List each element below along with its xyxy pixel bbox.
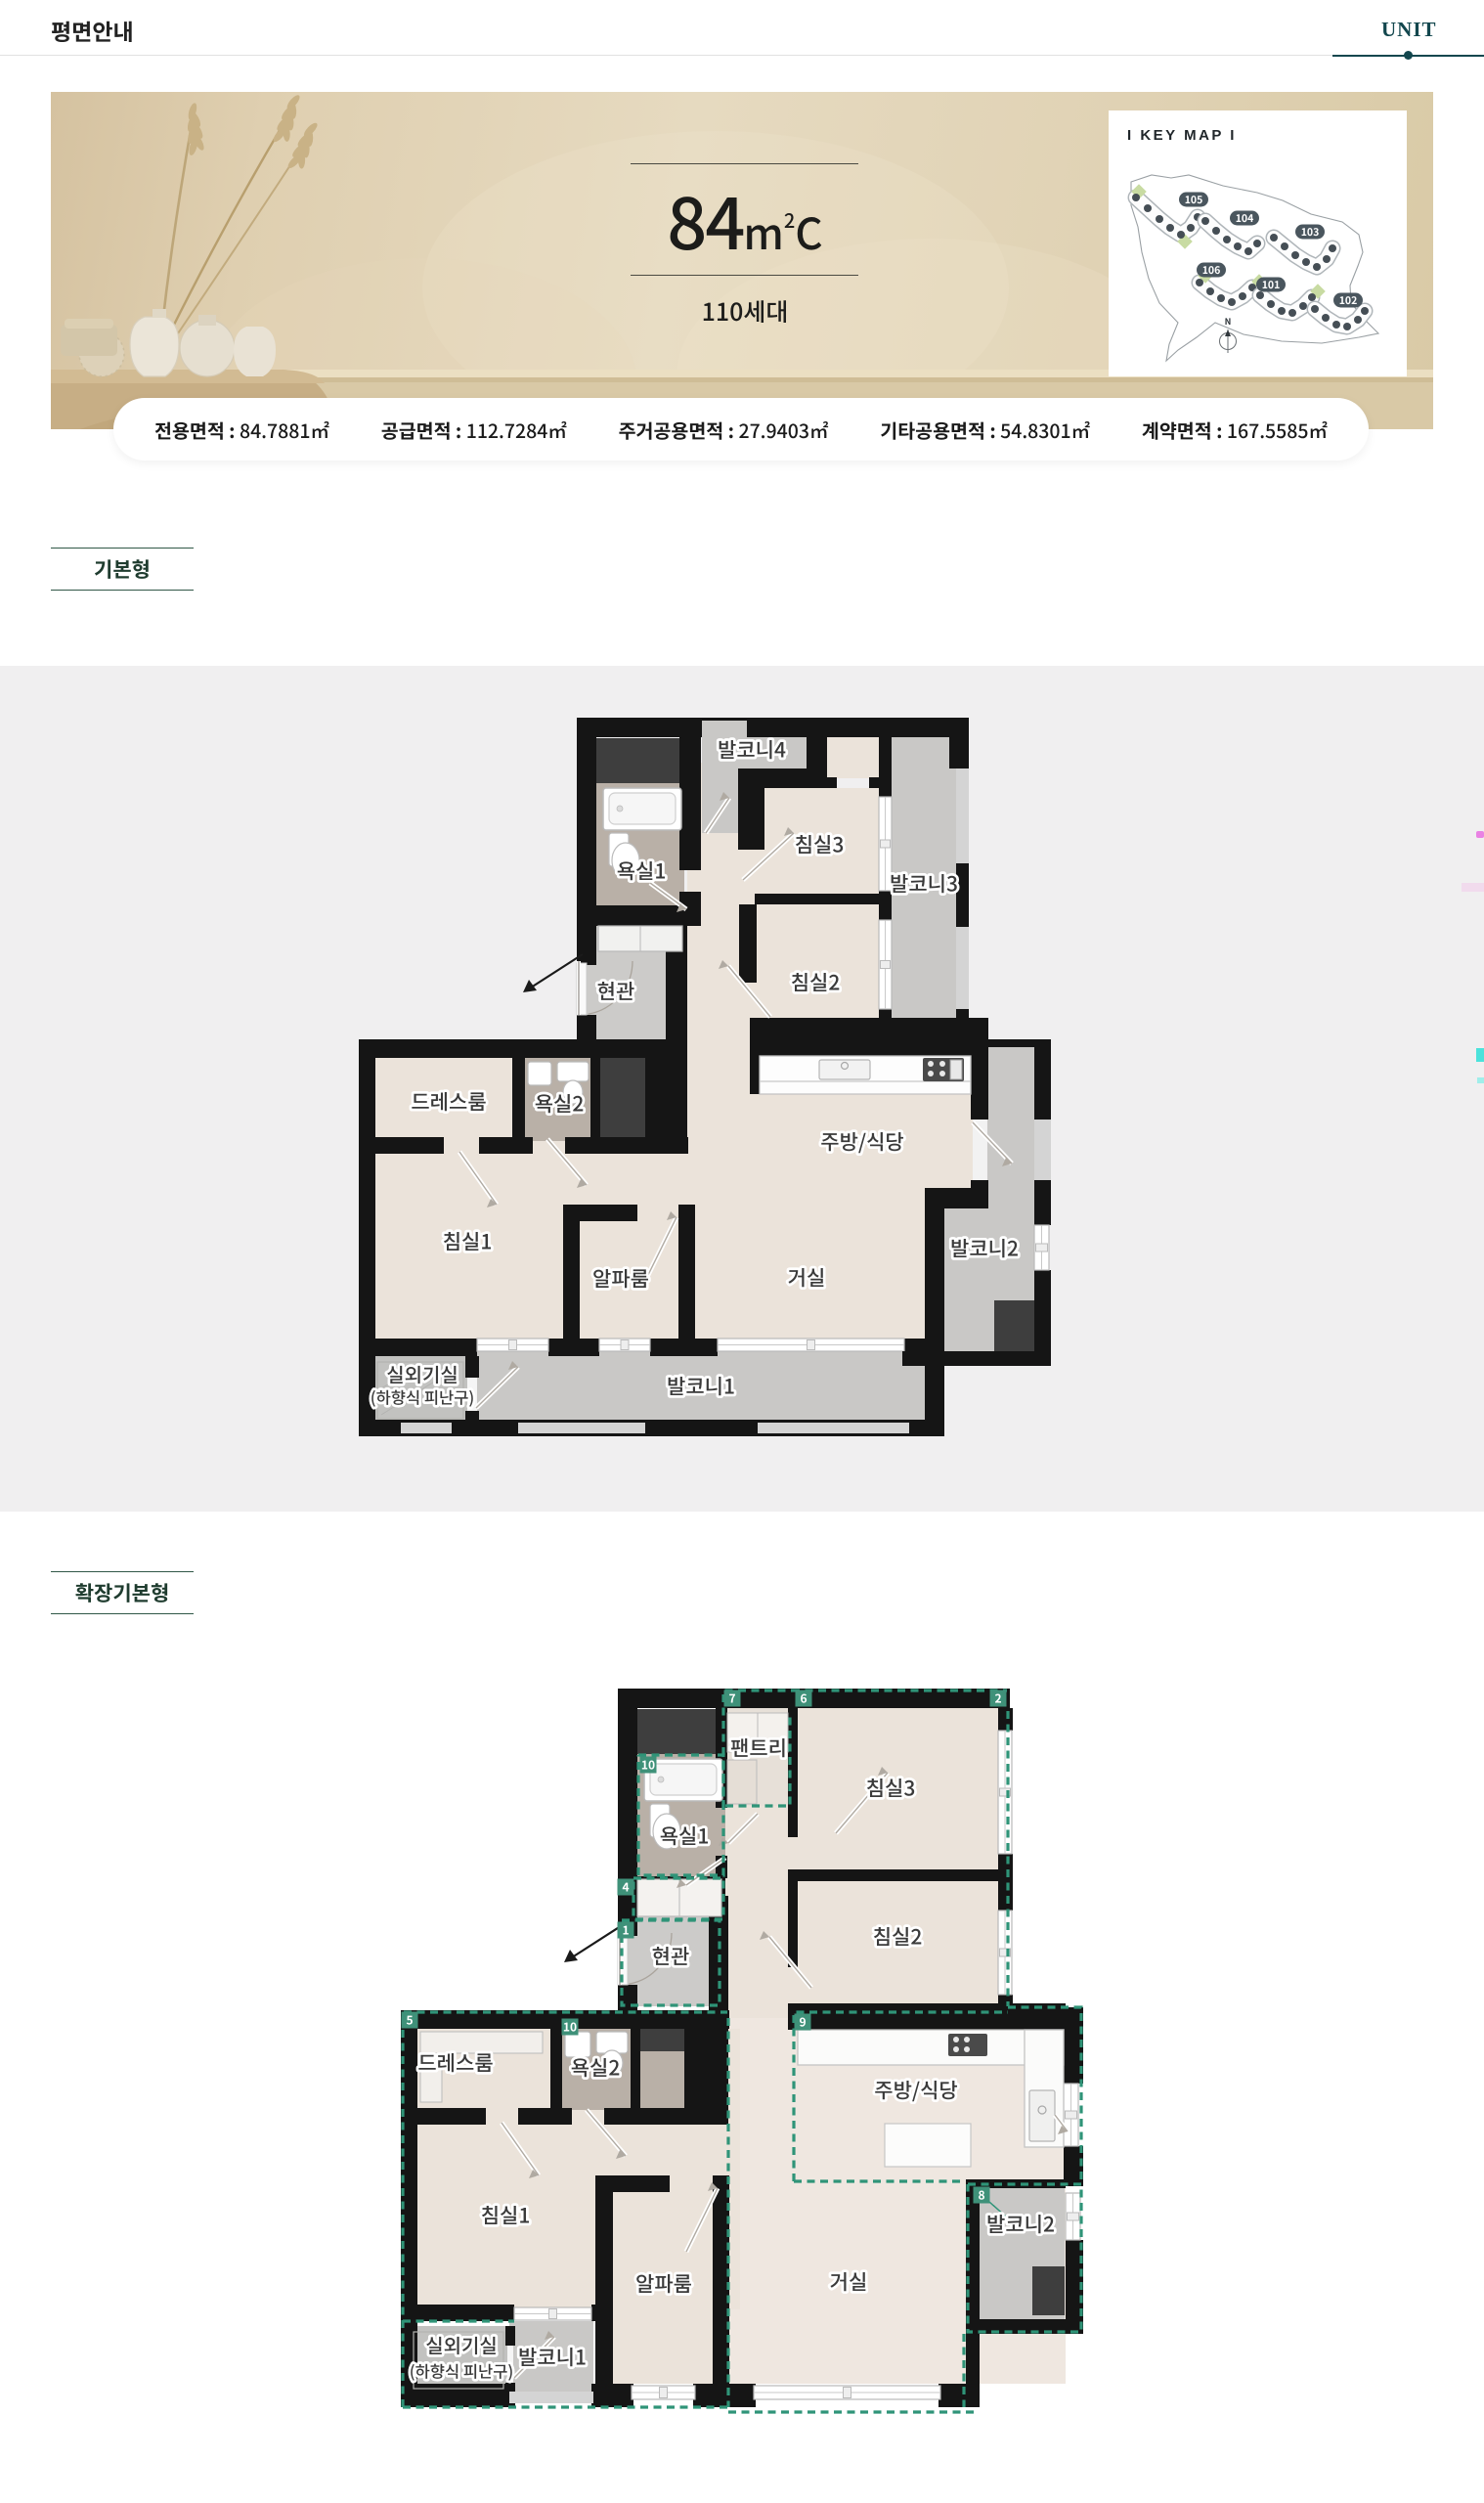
svg-text:욕실1: 욕실1 <box>617 856 667 886</box>
svg-text:2: 2 <box>994 1690 1001 1706</box>
svg-text:주방/식당: 주방/식당 <box>874 2076 957 2105</box>
svg-text:거실: 거실 <box>830 2267 868 2297</box>
svg-text:팬트리: 팬트리 <box>730 1734 787 1763</box>
svg-text:발코니2: 발코니2 <box>986 2210 1055 2239</box>
svg-text:욕실2: 욕실2 <box>535 1089 585 1119</box>
svg-text:침실3: 침실3 <box>795 830 845 859</box>
svg-text:105: 105 <box>1185 193 1203 207</box>
svg-text:5: 5 <box>406 2011 413 2028</box>
svg-text:(하향식 피난구): (하향식 피난구) <box>371 1384 475 1408</box>
svg-text:알파룸: 알파룸 <box>635 2269 692 2299</box>
svg-text:발코니3: 발코니3 <box>890 869 958 899</box>
svg-text:침실1: 침실1 <box>443 1227 493 1256</box>
svg-text:발코니1: 발코니1 <box>518 2343 587 2372</box>
svg-text:1: 1 <box>622 1921 629 1938</box>
svg-text:실외기실: 실외기실 <box>386 1359 458 1387</box>
svg-text:10: 10 <box>563 2018 577 2035</box>
svg-text:4: 4 <box>622 1878 629 1895</box>
svg-text:7: 7 <box>728 1690 735 1706</box>
svg-text:6: 6 <box>800 1690 807 1706</box>
svg-text:드레스룸: 드레스룸 <box>411 1087 486 1117</box>
svg-text:욕실1: 욕실1 <box>660 1822 710 1851</box>
svg-text:거실: 거실 <box>788 1263 826 1293</box>
svg-text:실외기실: 실외기실 <box>425 2330 498 2358</box>
svg-text:침실2: 침실2 <box>873 1922 923 1952</box>
svg-text:N: N <box>1225 315 1232 328</box>
svg-text:(하향식 피난구): (하향식 피난구) <box>410 2358 514 2382</box>
svg-text:104: 104 <box>1236 211 1254 226</box>
svg-text:9: 9 <box>799 2013 806 2030</box>
svg-text:발코니4: 발코니4 <box>718 735 786 765</box>
svg-text:발코니2: 발코니2 <box>950 1234 1019 1263</box>
svg-text:10: 10 <box>641 1756 655 1773</box>
svg-text:발코니1: 발코니1 <box>667 1372 735 1401</box>
svg-text:침실1: 침실1 <box>481 2201 531 2230</box>
svg-text:침실2: 침실2 <box>791 968 841 997</box>
svg-text:알파룸: 알파룸 <box>592 1264 649 1294</box>
svg-text:침실3: 침실3 <box>866 1774 916 1803</box>
svg-text:현관: 현관 <box>652 1942 690 1971</box>
svg-text:8: 8 <box>978 2186 984 2203</box>
svg-text:106: 106 <box>1202 263 1221 278</box>
svg-text:드레스룸: 드레스룸 <box>417 2048 493 2078</box>
svg-text:주방/식당: 주방/식당 <box>820 1127 903 1157</box>
svg-text:101: 101 <box>1262 278 1281 292</box>
svg-text:102: 102 <box>1339 293 1358 308</box>
svg-text:현관: 현관 <box>597 977 635 1006</box>
svg-text:욕실2: 욕실2 <box>571 2053 621 2083</box>
svg-text:103: 103 <box>1301 225 1320 240</box>
